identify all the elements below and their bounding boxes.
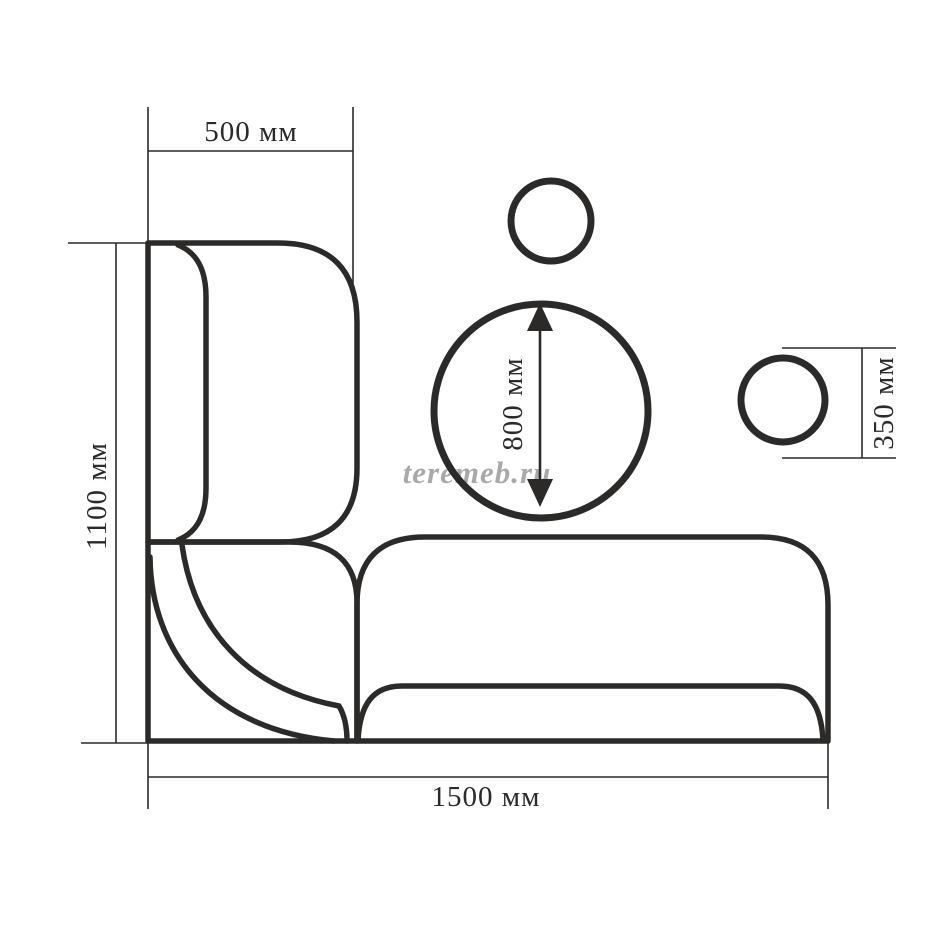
stool-circle xyxy=(741,358,825,442)
dimension-top-width: 500 мм xyxy=(148,107,353,296)
corner-section-outline xyxy=(148,542,357,741)
diameter-arrow-head-down xyxy=(527,479,553,507)
dimension-label-bottom-length: 1500 мм xyxy=(432,781,541,813)
long-section-cushion-line xyxy=(358,686,823,740)
dimension-bottom-length: 1500 мм xyxy=(148,742,828,813)
dimension-label-stool-diameter: 350 мм xyxy=(868,356,900,449)
dimension-label-table-diameter: 800 мм xyxy=(497,357,529,450)
back-section-outline xyxy=(148,243,357,542)
corner-section-seam-inner xyxy=(182,545,347,741)
furniture-plan-drawing: teremeb.ru 800 мм 500 мм 1100 мм xyxy=(0,0,950,950)
watermark: teremeb.ru xyxy=(403,455,552,490)
dimension-label-left-length: 1100 мм xyxy=(81,442,113,550)
long-section-outline xyxy=(357,537,828,741)
dimension-label-top-width: 500 мм xyxy=(204,116,297,148)
corner-section-seam-outer xyxy=(150,557,334,741)
furniture-plan-page: teremeb.ru 800 мм 500 мм 1100 мм xyxy=(0,0,950,950)
back-section-cushion-line xyxy=(178,245,206,540)
chair-circle xyxy=(511,181,591,261)
dimension-left-length: 1100 мм xyxy=(68,243,148,743)
